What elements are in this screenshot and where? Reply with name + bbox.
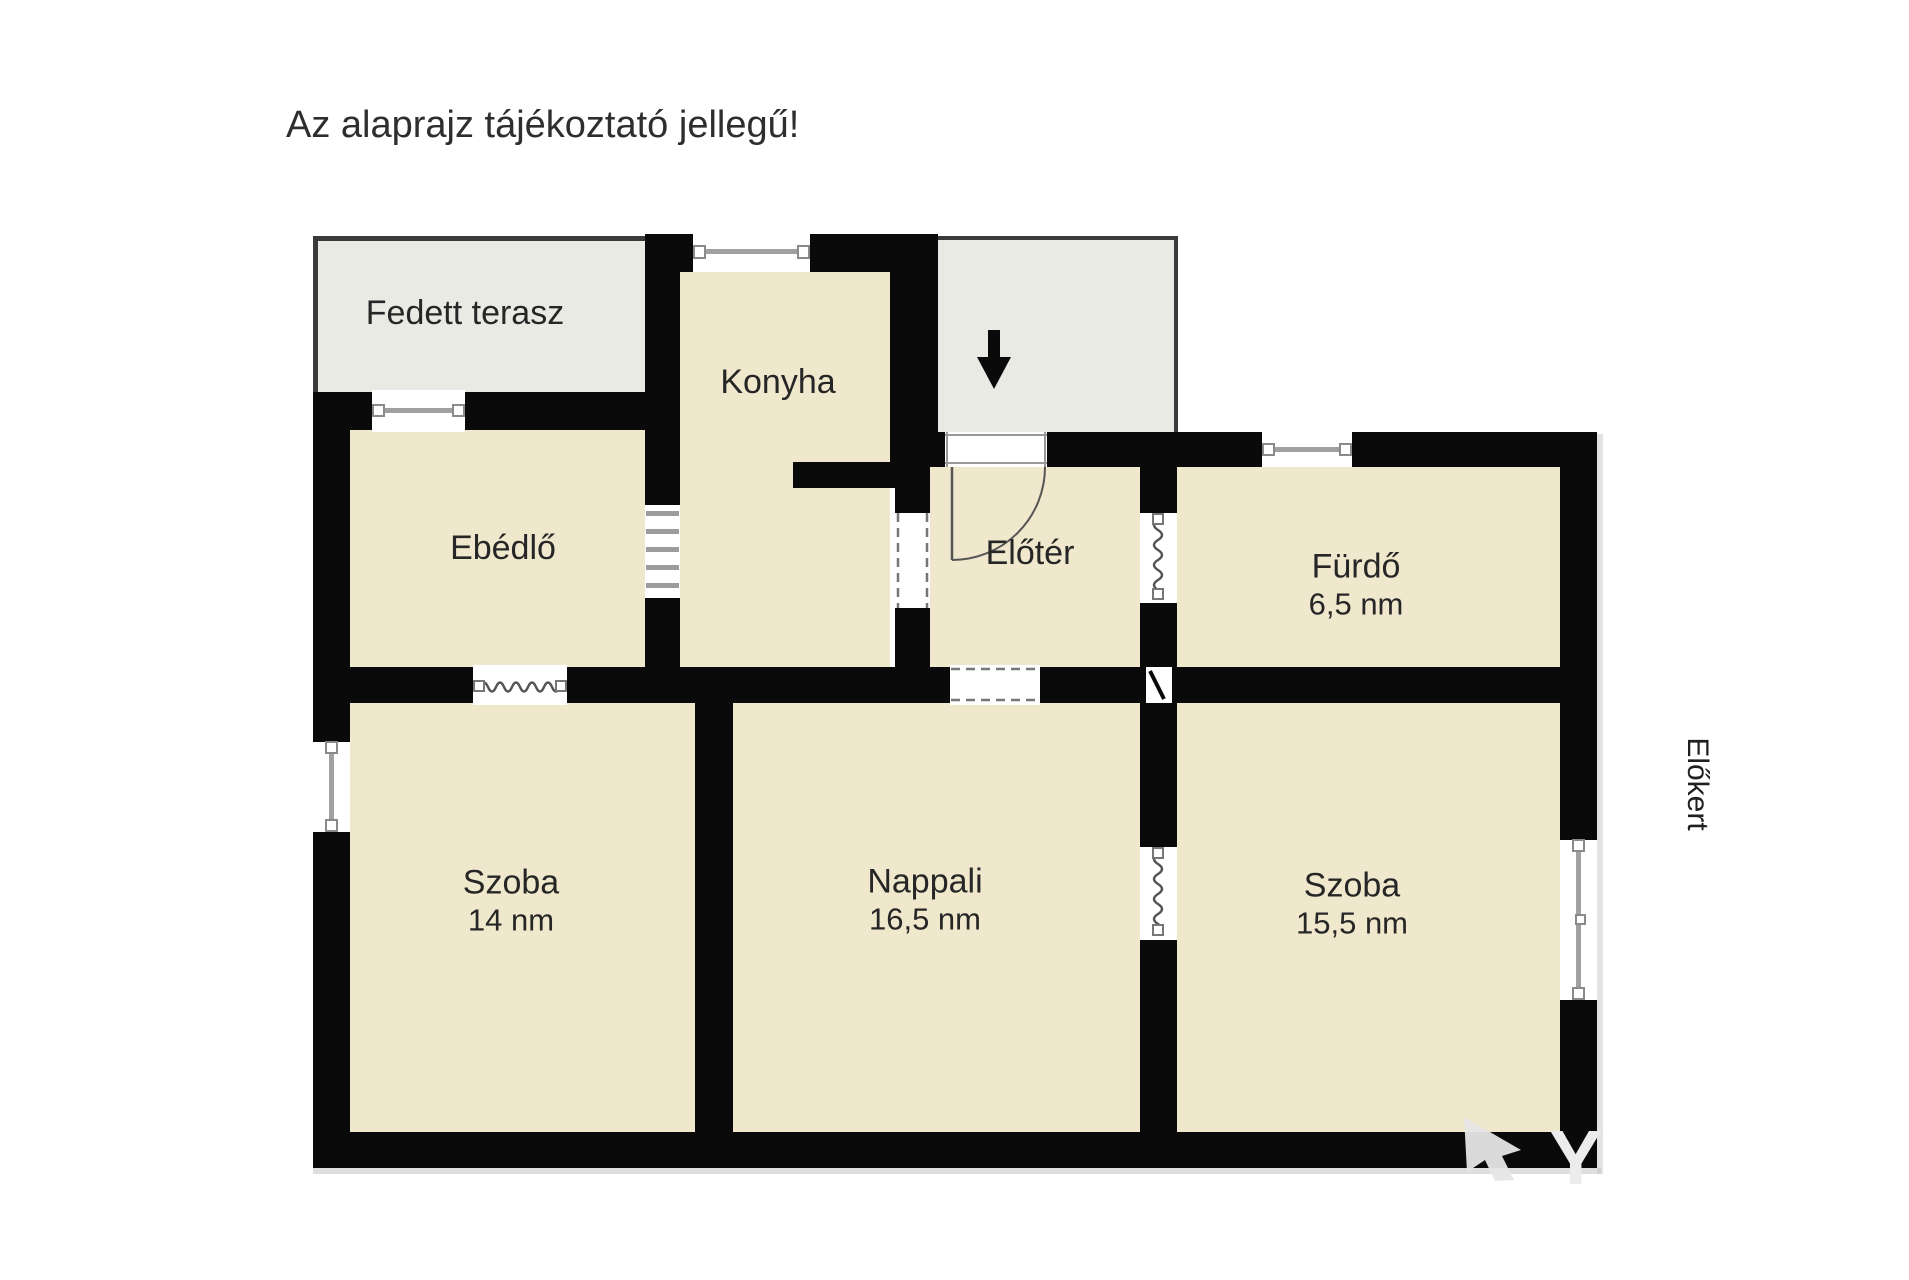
opening-kitchen-hall <box>895 513 930 608</box>
terrace-border-left <box>313 236 318 394</box>
bathroom-area: 6,5 nm <box>1309 587 1404 624</box>
room-label-dining: Ebédlő <box>450 528 556 568</box>
room-label-bathroom: Fürdő 6,5 nm <box>1309 547 1404 624</box>
opening-dining-roomleft <box>473 665 567 705</box>
wall-segment <box>1560 432 1597 840</box>
window-kitchen-top <box>693 234 810 272</box>
entry-door-opening <box>945 432 1047 467</box>
room-left-area: 14 nm <box>463 903 559 940</box>
front-garden-label: Előkert <box>1680 737 1714 830</box>
kitchen-stub-wall <box>793 462 907 488</box>
room-label-kitchen: Konyha <box>720 362 835 402</box>
opening-hall-bathroom <box>1140 513 1177 603</box>
living-area: 16,5 nm <box>867 902 982 939</box>
room-right-name: Szoba <box>1296 866 1408 906</box>
floorplan-drawing: Y <box>0 0 1909 1280</box>
floorplan-page: Y Az alaprajz tájékoztató jellegű! Fedet… <box>0 0 1909 1280</box>
window-dining-top <box>372 390 465 432</box>
wall-segment <box>810 234 938 272</box>
wall-segment <box>645 272 680 505</box>
wall-segment <box>567 667 950 703</box>
wall-segment <box>350 667 473 703</box>
wall-break-tick <box>1146 667 1172 703</box>
wall-segment <box>1140 603 1177 667</box>
wall-segment <box>1140 940 1177 1132</box>
wall-segment <box>1140 703 1177 847</box>
opening-hall-living <box>950 665 1040 705</box>
window-bathroom-top <box>1262 432 1352 467</box>
room-left-name: Szoba <box>463 863 559 903</box>
shadow-right <box>1597 434 1603 1174</box>
terrace-border-top <box>313 236 649 241</box>
room-label-living: Nappali 16,5 nm <box>867 862 982 939</box>
room-right-area: 15,5 nm <box>1296 906 1408 943</box>
wall-segment <box>695 703 733 1132</box>
watermark-letter: Y <box>1549 1114 1602 1203</box>
wall-segment <box>313 1132 1597 1168</box>
room-label-right: Szoba 15,5 nm <box>1296 866 1408 943</box>
window-room-right-east <box>1560 840 1597 1000</box>
room-label-left: Szoba 14 nm <box>463 863 559 940</box>
wall-segment <box>313 832 350 1168</box>
wall-segment <box>1140 467 1177 513</box>
wall-segment <box>645 234 693 272</box>
window-room-left-west <box>313 742 350 832</box>
wall-segment <box>1040 667 1597 703</box>
wall-segment <box>313 392 372 430</box>
wall-segment <box>890 432 945 467</box>
wall-segment <box>1352 432 1597 467</box>
porch-border-top <box>938 236 1178 240</box>
wall-segment <box>895 608 930 667</box>
porch-floor <box>938 238 1174 434</box>
window-ladder-dining-kitchen <box>645 505 680 598</box>
room-label-terrace: Fedett terasz <box>366 293 564 333</box>
living-name: Nappali <box>867 862 982 902</box>
wall-segment <box>645 598 680 667</box>
room-label-hall: Előtér <box>986 533 1075 573</box>
disclaimer-title: Az alaprajz tájékoztató jellegű! <box>286 104 799 147</box>
bathroom-name: Fürdő <box>1309 547 1404 587</box>
wall-segment <box>313 430 350 742</box>
wall-segment <box>1047 432 1262 467</box>
shadow-bottom <box>313 1168 1601 1174</box>
porch-border-right <box>1174 236 1178 434</box>
opening-living-roomright <box>1140 847 1177 940</box>
